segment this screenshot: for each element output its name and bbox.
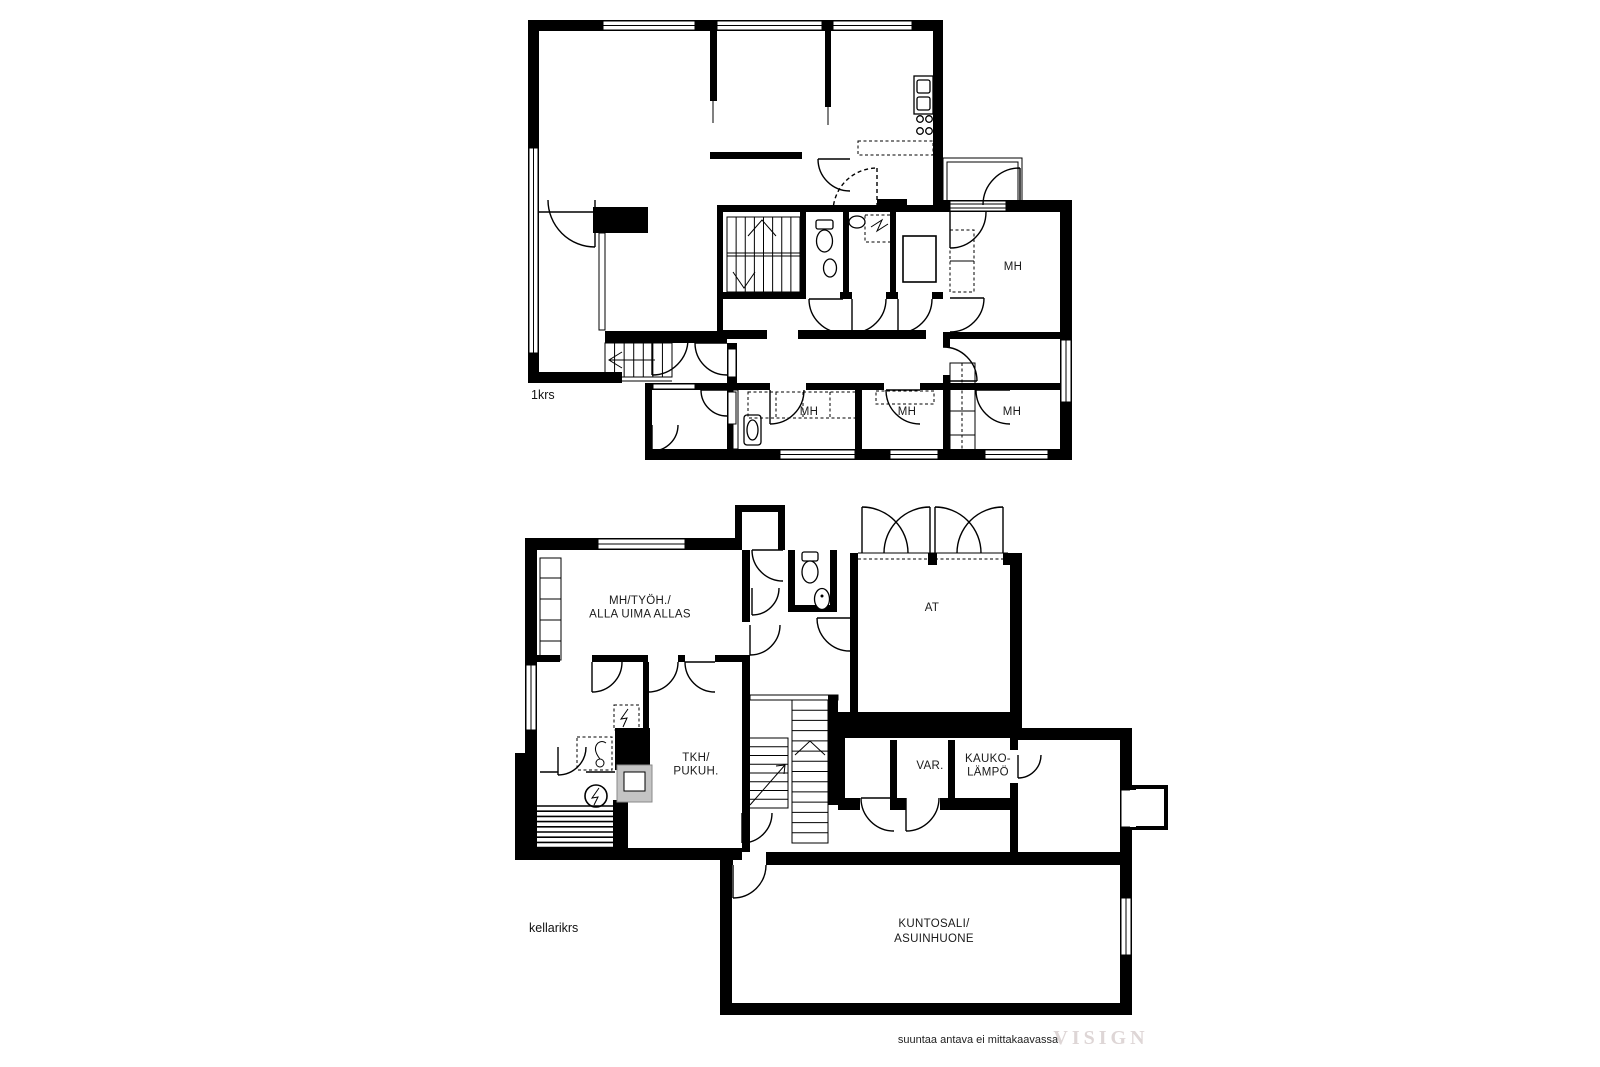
plan-kellarikrs: kellarikrs MH/TYÖH./ ALLA UIMA ALLAS AT … [515, 505, 1166, 1015]
shower-symbol-icon [577, 737, 612, 770]
bathtub-icon [737, 415, 765, 452]
door-arc [818, 159, 850, 191]
door-arc [906, 798, 939, 831]
door-arc [950, 298, 984, 332]
door-arc [852, 299, 886, 333]
door-arc [898, 299, 932, 333]
door-arc [652, 425, 678, 451]
plan-1krs: 1krs MH MH MH MH [528, 20, 1072, 460]
door-arc [648, 662, 678, 692]
exterior-cellar-stairs-icon [537, 806, 613, 848]
basement-toilet-icon [802, 552, 830, 610]
room-label-alla-uima-allas: ALLA UIMA ALLAS [589, 609, 691, 621]
door-arc [752, 588, 779, 615]
door-arc [861, 798, 894, 831]
room-label-mh-1: MH [1004, 261, 1023, 273]
room-label-mh-tyoh: MH/TYÖH./ [609, 595, 672, 607]
disclaimer-text: suuntaa antava ei mittakaavassa [898, 1034, 1059, 1046]
kitchen-sink-icon [914, 76, 933, 114]
door-arc [652, 339, 688, 375]
basement-stairs-icon [746, 700, 828, 843]
floor-label-kellarikrs: kellarikrs [529, 921, 578, 935]
room-label-lampo: LÄMPÖ [967, 767, 1009, 779]
room-label-var: VAR. [916, 760, 943, 772]
room-label-pukuh: PUKUH. [673, 766, 718, 778]
sauna-bench-icon [903, 236, 936, 282]
wall-recess-box [1130, 787, 1166, 828]
floor-plan-drawing: 1krs MH MH MH MH [0, 0, 1600, 1067]
closet-column-icon [540, 558, 561, 660]
room-label-kauko: KAUKO- [965, 753, 1011, 765]
room-label-mh-4: MH [1003, 406, 1022, 418]
door-arc [1018, 755, 1041, 778]
floor-plan-sheet: 1krs MH MH MH MH [0, 0, 1600, 1067]
door-arc [701, 390, 727, 416]
plan-kellarikrs-walls [515, 505, 1132, 1015]
door-arc [695, 343, 727, 375]
bath-sink-icon [849, 216, 865, 228]
electric-panel-icon [614, 705, 639, 730]
floor-label-1krs: 1krs [531, 388, 555, 402]
door-arc [733, 865, 766, 898]
door-arc [592, 662, 622, 692]
wc-toilet-icon [816, 220, 837, 277]
room-label-asuinhuone: ASUINHUONE [894, 933, 974, 945]
room-label-mh-3: MH [898, 406, 917, 418]
door-arc [558, 747, 586, 775]
room-label-kuntosali: KUNTOSALI/ [898, 918, 970, 930]
room-label-at: AT [925, 602, 939, 614]
kitchen-stove-icon [858, 116, 933, 155]
door-arc [548, 200, 595, 247]
door-arc [750, 625, 780, 655]
room-label-tkh: TKH/ [682, 752, 710, 764]
plan-kellarikrs-doors [558, 507, 1041, 898]
room-label-mh-2: MH [800, 406, 819, 418]
door-arc [809, 299, 843, 333]
sauna-stove-icon [617, 765, 652, 802]
electric-meter-icon [585, 785, 607, 807]
watermark-logo: VISIGN [1053, 1027, 1148, 1049]
shower-icon [865, 215, 892, 242]
door-arc [983, 168, 1020, 205]
door-arc [752, 550, 783, 581]
door-arc [685, 662, 715, 692]
door-arc [817, 618, 850, 651]
